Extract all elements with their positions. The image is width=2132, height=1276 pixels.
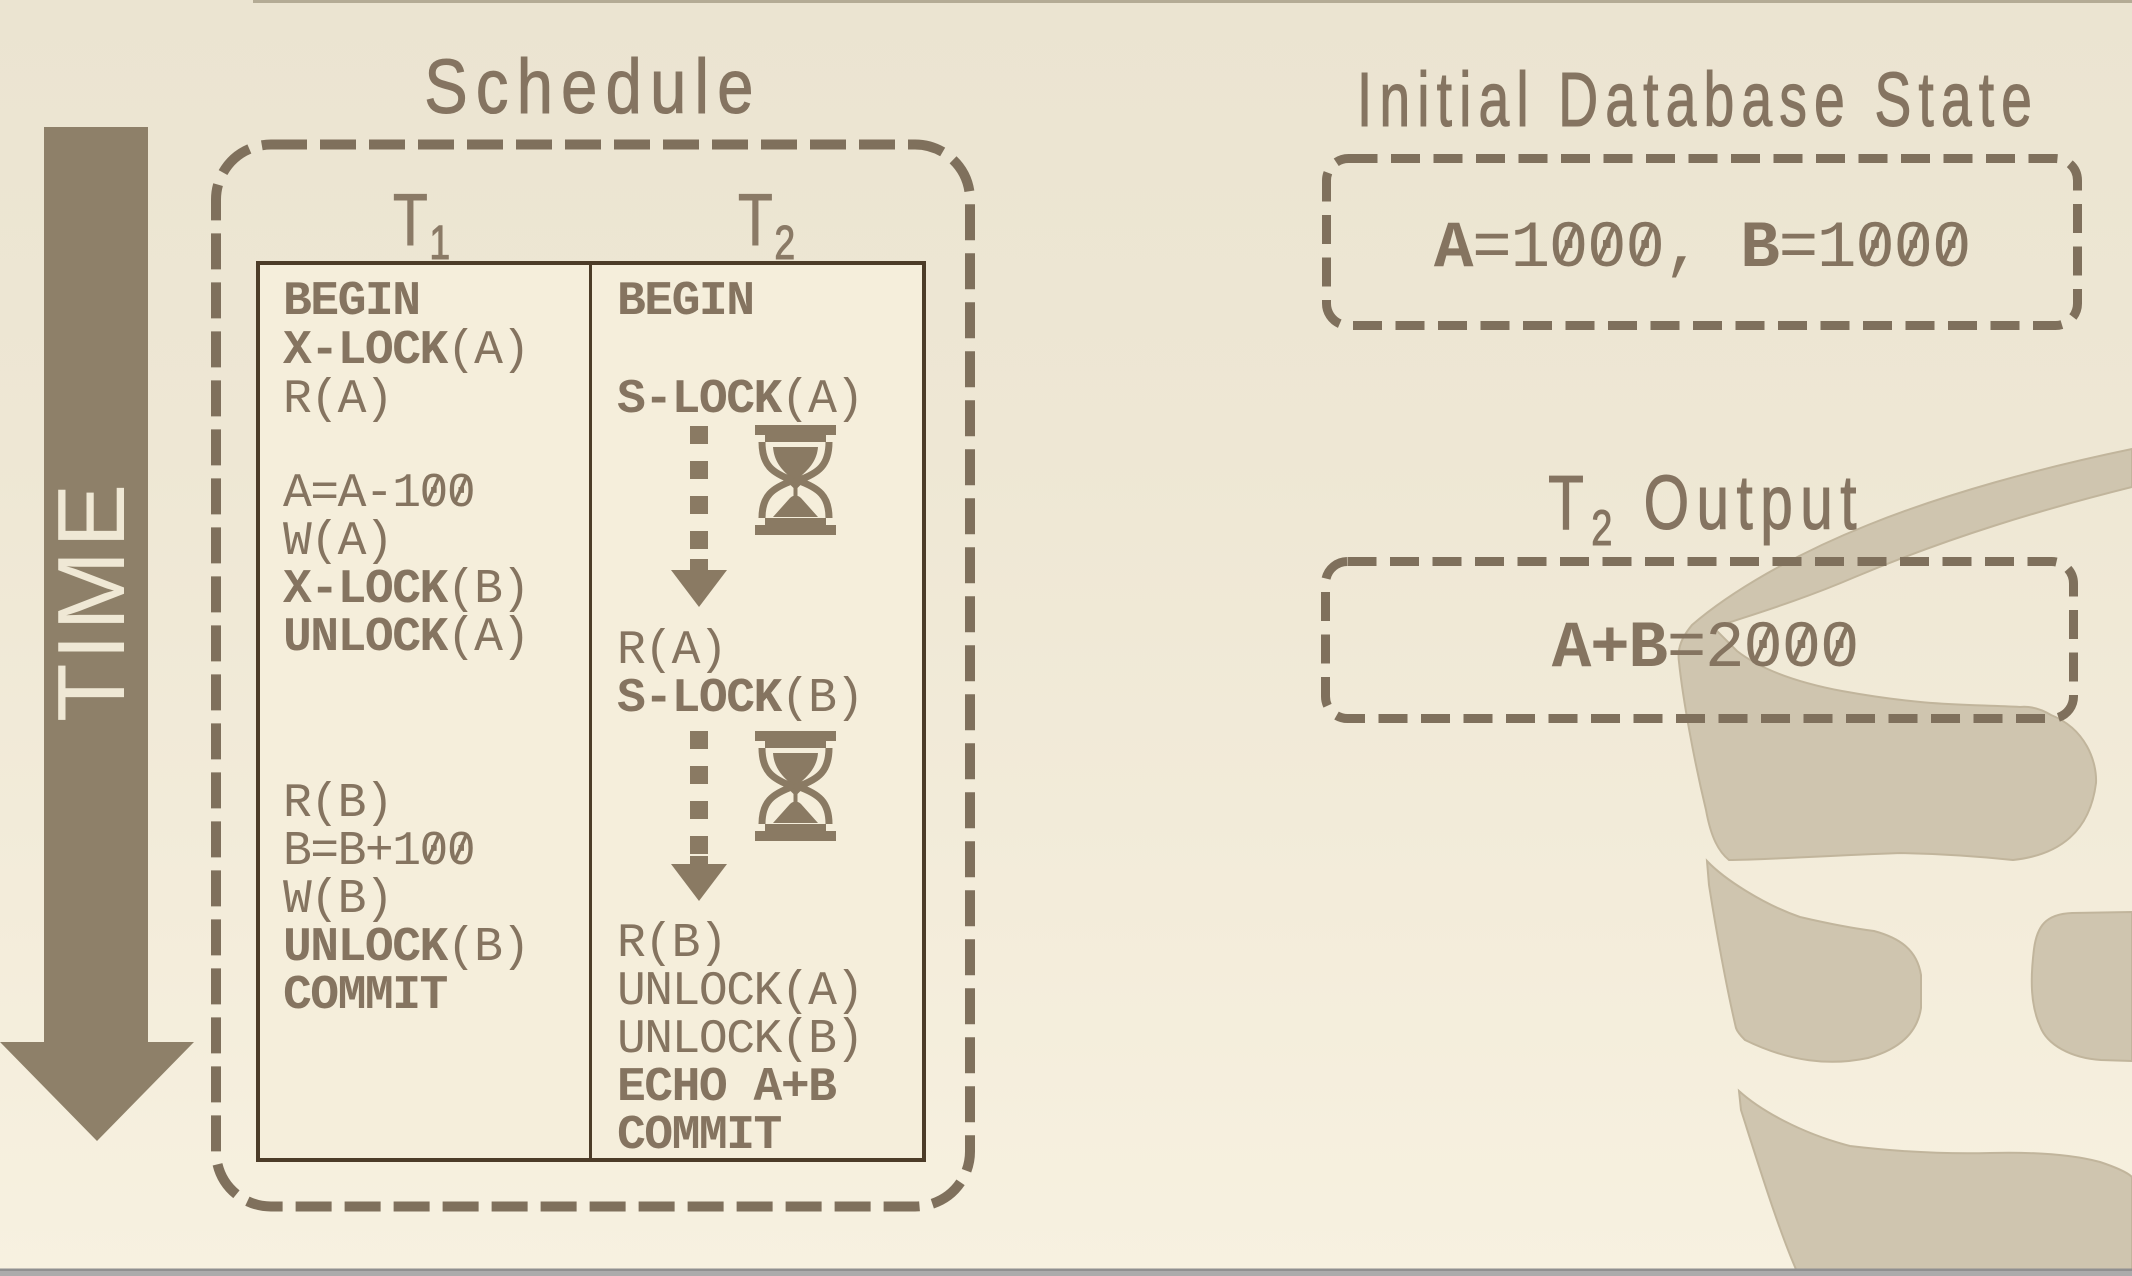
svg-text:W(B): W(B)	[283, 873, 392, 927]
svg-text:UNLOCK(B): UNLOCK(B)	[617, 1013, 863, 1067]
svg-text:R(B): R(B)	[617, 917, 726, 971]
svg-text:A=1000, B=1000: A=1000, B=1000	[1434, 211, 1970, 286]
svg-text:COMMIT: COMMIT	[283, 969, 448, 1023]
svg-text:X-LOCK(B): X-LOCK(B)	[283, 563, 529, 617]
svg-text:X-LOCK(A): X-LOCK(A)	[283, 324, 529, 378]
svg-text:W(A): W(A)	[283, 515, 392, 569]
svg-text:B=B+100: B=B+100	[283, 825, 474, 879]
svg-text:COMMIT: COMMIT	[617, 1109, 782, 1163]
svg-text:BEGIN: BEGIN	[283, 275, 420, 329]
svg-text:TIME: TIME	[38, 481, 145, 722]
svg-text:R(A): R(A)	[283, 373, 392, 427]
svg-text:S-LOCK(B): S-LOCK(B)	[617, 672, 863, 726]
svg-text:UNLOCK(A): UNLOCK(A)	[617, 965, 863, 1019]
svg-text:UNLOCK(B): UNLOCK(B)	[283, 921, 529, 975]
svg-text:UNLOCK(A): UNLOCK(A)	[283, 611, 529, 665]
svg-text:ECHO A+B: ECHO A+B	[617, 1061, 836, 1115]
svg-text:Initial Database State: Initial Database State	[1357, 57, 2039, 143]
svg-text:A+B=2000: A+B=2000	[1552, 611, 1858, 686]
svg-text:A=A-100: A=A-100	[283, 467, 474, 521]
svg-text:S-LOCK(A): S-LOCK(A)	[617, 373, 863, 427]
svg-text:Schedule: Schedule	[424, 44, 762, 130]
svg-text:BEGIN: BEGIN	[617, 275, 754, 329]
svg-text:R(B): R(B)	[283, 777, 392, 831]
svg-text:R(A): R(A)	[617, 624, 726, 678]
